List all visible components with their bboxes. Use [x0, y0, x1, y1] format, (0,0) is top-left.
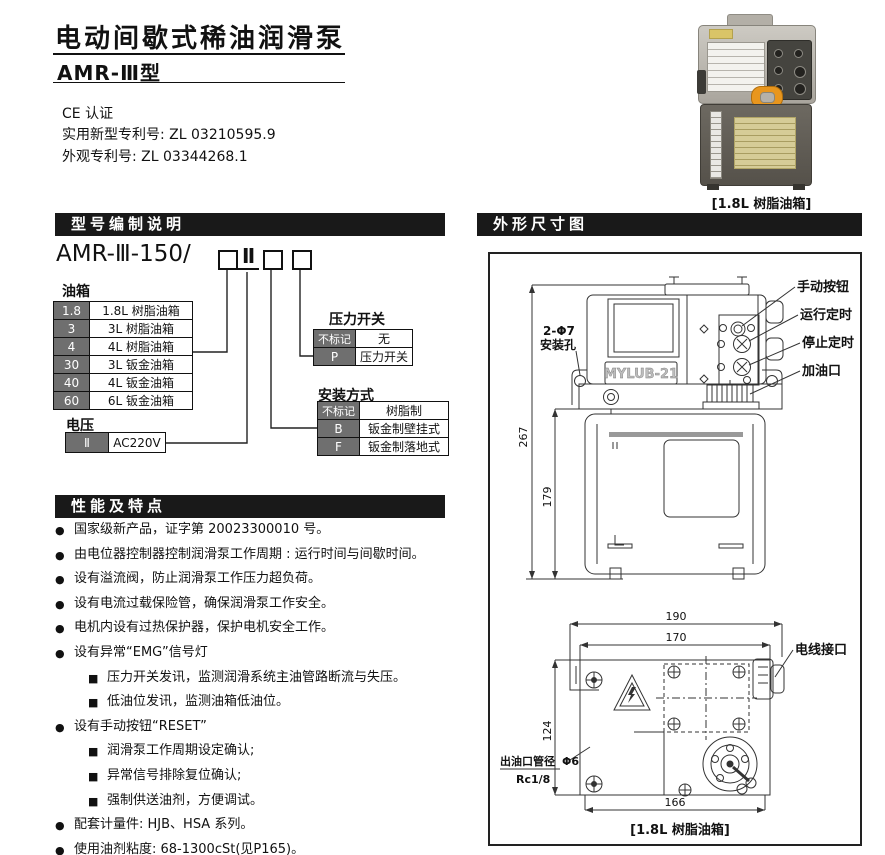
- spec-label: [707, 42, 765, 92]
- list-item: ●电机内设有过热保护器，保护电机安全工作。: [55, 620, 480, 636]
- table-row: 404L 钣金油箱: [54, 374, 193, 392]
- ce-cert-line: CE 认证: [62, 103, 113, 123]
- bullet-icon: ●: [55, 645, 74, 661]
- list-item: ■强制供送油剂，方便调试。: [88, 793, 480, 809]
- oil-reservoir: [700, 104, 812, 186]
- product-photo: [693, 12, 830, 192]
- square-bullet-icon: ■: [88, 694, 107, 710]
- base-plate: [579, 384, 782, 409]
- pressure-table-label: 压力开关: [329, 309, 385, 329]
- label-wire-port: 电线接口: [795, 642, 847, 658]
- list-item: ■异常信号排除复位确认;: [88, 768, 480, 784]
- title-rule: [53, 53, 345, 55]
- list-item: ●设有电流过载保险管，确保润滑泵工作安全。: [55, 596, 480, 612]
- label-stop-timer: 停止定时: [802, 335, 854, 351]
- page-title: 电动间歇式稀油润滑泵: [55, 18, 345, 55]
- outlet-port-icon: [604, 390, 619, 405]
- square-bullet-icon: ■: [88, 743, 107, 759]
- table-row: P压力开关: [314, 348, 413, 366]
- model-code-box-pressure: [292, 250, 312, 270]
- bullet-icon: ●: [55, 817, 74, 833]
- dim-166: 166: [665, 796, 686, 809]
- list-item: ●设有异常“EMG”信号灯: [55, 645, 480, 661]
- photo-caption: [1.8L 树脂油箱]: [693, 193, 830, 212]
- level-gauge: [710, 111, 722, 179]
- section-header-features: 性能及特点: [55, 495, 445, 518]
- mounting-hole-icon: [575, 376, 586, 387]
- level-line: [609, 432, 743, 437]
- brand-text: MYLUB-21: [604, 367, 678, 382]
- label-run-timer: 运行定时: [800, 307, 852, 323]
- bullet-icon: ●: [55, 522, 74, 538]
- label-outlet-1: 出油口管径: [500, 754, 555, 768]
- list-item: ●设有手动按钮“RESET”: [55, 719, 480, 735]
- table-row: 606L 钣金油箱: [54, 392, 193, 410]
- bullet-icon: ●: [55, 620, 74, 636]
- features-list: ●国家级新产品，证字第 20023300010 号。 ●由电位器控制器控制润滑泵…: [55, 522, 480, 855]
- mounting-table: 不标记树脂制 B钣金制壁挂式 F钣金制落地式: [317, 401, 449, 456]
- knob-icon: [794, 66, 806, 78]
- list-item: ●国家级新产品，证字第 20023300010 号。: [55, 522, 480, 538]
- list-item: ■压力开关发讯，监测润滑系统主油管路断流与失压。: [88, 670, 480, 686]
- square-bullet-icon: ■: [88, 793, 107, 809]
- display-window: [608, 299, 679, 357]
- fill-cap-front: [707, 385, 753, 402]
- reservoir-foot: [793, 184, 805, 190]
- subtitle-rule: [53, 82, 345, 83]
- tank-table: 1.81.8L 树脂油箱 33L 树脂油箱 44L 树脂油箱 303L 钣金油箱…: [53, 301, 193, 410]
- model-code-voltage: Ⅱ: [238, 244, 259, 270]
- voltage-table: ⅡAC220V: [65, 432, 166, 453]
- tank-label-outline: [664, 440, 739, 517]
- dim-124: 124: [541, 721, 554, 742]
- model-code-prefix: AMR-Ⅲ-150/: [56, 241, 191, 267]
- knob-icon: [794, 83, 806, 95]
- label-fill-port: 加油口: [801, 363, 841, 379]
- side-connector: [697, 70, 706, 94]
- square-bullet-icon: ■: [88, 670, 107, 686]
- list-item: ●配套计量件: HJB、HSA 系列。: [55, 817, 480, 833]
- fill-cap-top-icon: [703, 737, 757, 794]
- table-row: B钣金制壁挂式: [318, 420, 449, 438]
- wall-bracket-top: [570, 660, 599, 690]
- label-outlet-phi: Φ6: [562, 755, 579, 768]
- table-row: 44L 树脂油箱: [54, 338, 193, 356]
- warning-triangle-icon: [614, 675, 650, 710]
- bullet-icon: ●: [55, 571, 74, 587]
- section-header-model-coding: 型号编制说明: [55, 213, 445, 236]
- fill-cap-center: [760, 92, 775, 103]
- square-bullet-icon: ■: [88, 768, 107, 784]
- table-row: 不标记树脂制: [318, 402, 449, 420]
- label-mount-holes-2: 安装孔: [540, 337, 576, 352]
- dim-arrows: [529, 285, 782, 813]
- table-row: F钣金制落地式: [318, 438, 449, 456]
- bullet-icon: ●: [55, 842, 74, 855]
- dim-179: 179: [541, 487, 554, 508]
- knob-icon: [774, 66, 783, 75]
- bullet-icon: ●: [55, 719, 74, 735]
- table-row: 不标记无: [314, 330, 413, 348]
- catalog-page: 电动间歇式稀油润滑泵 AMR-Ⅲ型 CE 认证 实用新型专利号: ZL 0321…: [0, 0, 885, 855]
- dim-170: 170: [666, 631, 687, 644]
- list-item: ●使用油剂粘度: 68-1300cSt(见P165)。: [55, 842, 480, 855]
- bullet-icon: ●: [55, 596, 74, 612]
- list-item: ■低油位发讯，监测油箱低油位。: [88, 694, 480, 710]
- mounting-hole-icon: [767, 376, 778, 387]
- leader-lines: [742, 287, 800, 394]
- dimension-drawing: MYLUB-21: [490, 254, 860, 844]
- knob-icon: [794, 49, 803, 58]
- bolt-icons: [586, 666, 745, 796]
- pressure-table: 不标记无 P压力开关: [313, 329, 413, 366]
- dim-190: 190: [666, 610, 687, 623]
- table-row: 1.81.8L 树脂油箱: [54, 302, 193, 320]
- table-row: 33L 树脂油箱: [54, 320, 193, 338]
- list-item: ●由电位器控制器控制润滑泵工作周期 : 运行时间与间歇时间。: [55, 547, 480, 563]
- reset-button-icon: [731, 322, 745, 336]
- model-code-box-tank: [218, 250, 238, 270]
- design-patent-line: 外观专利号: ZL 03344268.1: [62, 146, 248, 166]
- label-mount-holes-1: 2-Φ7: [543, 324, 575, 338]
- list-item: ●设有溢流阀，防止润滑泵工作压力超负荷。: [55, 571, 480, 587]
- top-handle: [665, 284, 749, 295]
- bullet-icon: ●: [55, 547, 74, 563]
- dimension-drawing-frame: MYLUB-21: [488, 252, 862, 846]
- warning-sticker: [709, 29, 733, 39]
- section-header-dimensions: 外形尺寸图: [477, 213, 862, 236]
- dim-267: 267: [517, 427, 530, 448]
- label-outlet-2: Rc1/8: [516, 773, 550, 786]
- tank-table-label: 油箱: [62, 281, 90, 301]
- utility-patent-line: 实用新型专利号: ZL 03210595.9: [62, 124, 276, 144]
- leader-line-mount-hole: [576, 351, 580, 375]
- cable-gland: [766, 301, 783, 323]
- model-code-box-mounting: [263, 250, 283, 270]
- bolt-diamond-icon: [700, 325, 708, 383]
- table-row: 303L 钣金油箱: [54, 356, 193, 374]
- label-manual-button: 手动按钮: [797, 279, 849, 295]
- knob-icon: [774, 49, 783, 58]
- list-item: ■润滑泵工作周期设定确认;: [88, 743, 480, 759]
- table-row: ⅡAC220V: [66, 433, 166, 453]
- tank-front-outline: [585, 414, 765, 574]
- instruction-label: [734, 117, 796, 169]
- drawing-caption: [1.8L 树脂油箱]: [630, 822, 730, 838]
- reservoir-foot: [707, 184, 719, 190]
